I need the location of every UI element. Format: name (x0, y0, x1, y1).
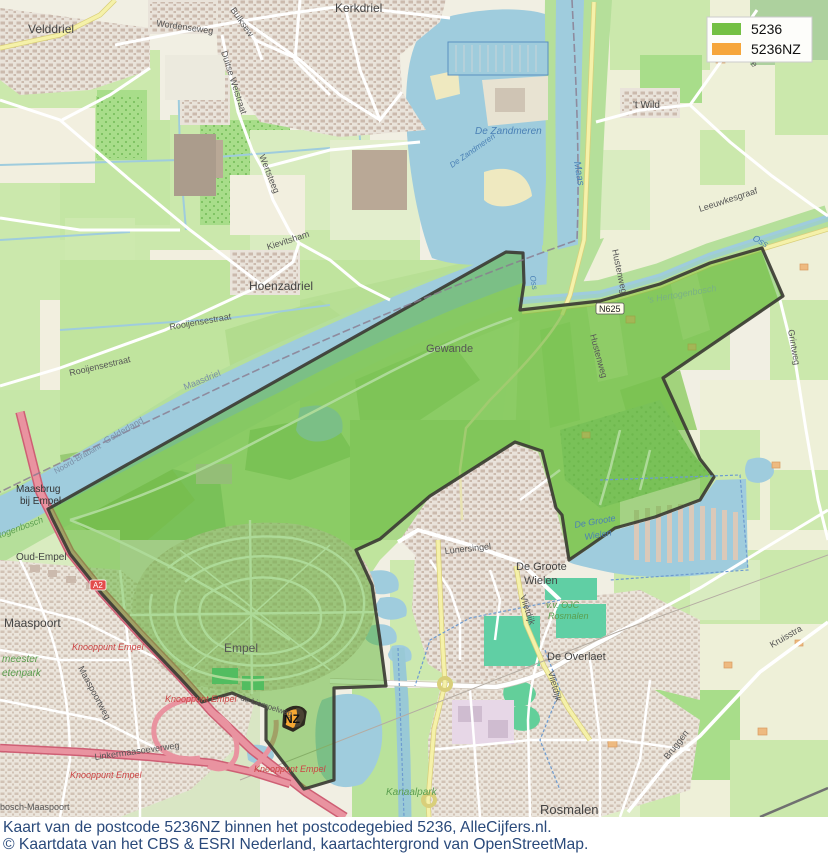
svg-text:Maasbrug: Maasbrug (16, 484, 60, 495)
svg-text:A2: A2 (93, 581, 103, 590)
svg-text:Oud-Empel: Oud-Empel (16, 552, 67, 563)
svg-text:'t Wild: 't Wild (633, 100, 660, 111)
svg-text:Rosmalen: Rosmalen (548, 611, 589, 621)
svg-text:v.v. OJC: v.v. OJC (546, 600, 580, 610)
svg-text:meester: meester (2, 654, 39, 665)
svg-text:De Overlaet: De Overlaet (547, 651, 606, 663)
svg-text:Knooppunt Empel: Knooppunt Empel (165, 694, 238, 704)
svg-text:Hoenzadriel: Hoenzadriel (249, 279, 313, 293)
svg-text:etenpark: etenpark (2, 668, 42, 679)
svg-text:Knooppunt Empel: Knooppunt Empel (254, 764, 327, 774)
svg-text:Kerkdriel: Kerkdriel (335, 1, 382, 15)
svg-text:Knooppunt Empel: Knooppunt Empel (72, 642, 145, 652)
svg-text:5236NZ: 5236NZ (751, 41, 801, 57)
svg-text:Rosmalen: Rosmalen (540, 802, 599, 817)
svg-text:De Groote: De Groote (516, 561, 567, 573)
svg-text:bij Empel: bij Empel (20, 496, 61, 507)
svg-text:Gewande: Gewande (426, 343, 473, 355)
svg-text:bosch-Maaspoort: bosch-Maaspoort (0, 802, 70, 812)
svg-text:Kanaalpark: Kanaalpark (386, 787, 438, 798)
svg-text:Empel: Empel (224, 641, 258, 655)
svg-text:Maaspoort: Maaspoort (4, 616, 61, 630)
svg-text:5236: 5236 (751, 21, 782, 37)
svg-text:N625: N625 (599, 304, 621, 314)
svg-text:Velddriel: Velddriel (28, 22, 74, 36)
svg-text:Knooppunt Empel: Knooppunt Empel (70, 770, 143, 780)
svg-text:Wielen: Wielen (524, 575, 558, 587)
